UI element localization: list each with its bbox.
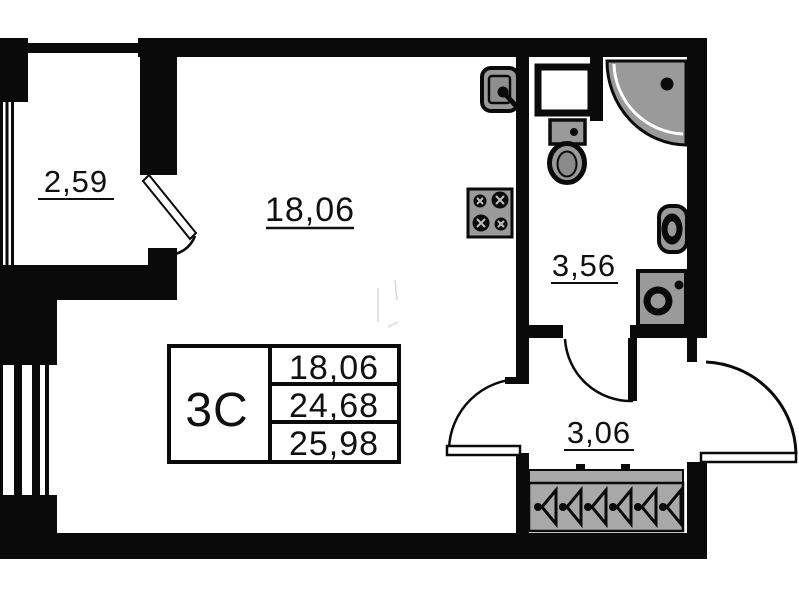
balcony-glazing-icon bbox=[0, 102, 14, 265]
wall-balcony-bottom bbox=[0, 265, 177, 300]
wall-balcony-divider bbox=[140, 38, 177, 175]
watermark-ghost bbox=[378, 280, 398, 327]
floor-plan: 3С 18,06 24,68 25,98 2,59 18,06 3,56 3,0… bbox=[0, 0, 799, 600]
washbasin-icon bbox=[659, 206, 687, 252]
entrance-jamb-notch bbox=[697, 338, 707, 362]
wall-left-lower bbox=[0, 495, 57, 533]
total-area-value: 25,98 bbox=[289, 425, 379, 463]
wall-corner-block bbox=[0, 38, 28, 102]
corner-shower-icon bbox=[607, 61, 686, 145]
floor-plan-drawing: 3С 18,06 24,68 25,98 2,59 18,06 3,56 3,0… bbox=[0, 0, 799, 600]
wall-left-upper bbox=[0, 300, 57, 365]
info-table: 3С 18,06 24,68 25,98 bbox=[169, 346, 399, 463]
living-room-area-label: 18,06 bbox=[265, 191, 355, 229]
washing-machine-icon bbox=[638, 271, 686, 326]
balcony-door-icon bbox=[143, 175, 196, 256]
entrance-door-icon bbox=[701, 362, 796, 462]
wardrobe-icon bbox=[529, 464, 683, 531]
bathroom-area-label: 3,56 bbox=[552, 248, 616, 283]
room-door-icon bbox=[447, 379, 521, 455]
duct-box-icon bbox=[538, 67, 591, 113]
hallway-area-label: 3,06 bbox=[567, 415, 631, 450]
balcony-area-label: 2,59 bbox=[44, 164, 108, 199]
wall-bottom bbox=[0, 533, 707, 559]
stove-icon bbox=[468, 189, 512, 237]
bathroom-door-icon bbox=[565, 338, 637, 401]
wall-partition-lower bbox=[516, 453, 529, 533]
living-area-value: 18,06 bbox=[289, 349, 379, 387]
wall-top bbox=[138, 38, 707, 57]
wall-bathroom-bottom-left bbox=[529, 325, 563, 338]
wall-right-lower bbox=[687, 462, 707, 533]
unit-type-label: 3С bbox=[185, 384, 248, 437]
toilet-icon bbox=[550, 120, 586, 183]
window-icon bbox=[0, 365, 49, 495]
wall-right-upper bbox=[687, 38, 707, 362]
area-no-balcony-value: 24,68 bbox=[289, 387, 379, 425]
